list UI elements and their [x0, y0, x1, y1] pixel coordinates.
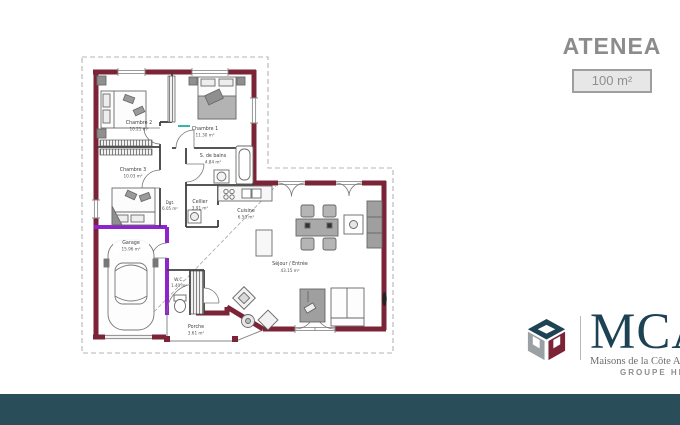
svg-text:Garage: Garage	[122, 240, 140, 246]
logo-text-column: MCA Maisons de la Côte Atlantique	[590, 312, 680, 367]
dining-set	[296, 205, 338, 250]
model-name: ATENEA	[554, 33, 670, 60]
svg-text:6.05 m²: 6.05 m²	[162, 206, 178, 211]
svg-text:S. de bains: S. de bains	[200, 153, 227, 159]
shutter-mark	[382, 292, 386, 306]
mca-logo: MCA Maisons de la Côte Atlantique	[523, 312, 680, 367]
kitchen-counters	[218, 186, 272, 256]
cube-logo-icon	[523, 316, 570, 363]
room-label-wc: W.C. 1.40 m²	[171, 277, 187, 288]
svg-text:Chambre 1: Chambre 1	[192, 126, 218, 132]
room-label-chambre2: Chambre 2 10.21 m²	[126, 120, 152, 132]
logo-divider	[580, 316, 581, 360]
room-label-sejour: Séjour / Entrée 43.15 m²	[272, 260, 308, 273]
svg-text:Chambre 2: Chambre 2	[126, 120, 152, 126]
area-badge: 100 m²	[572, 69, 652, 93]
floor-plan-sheet: Chambre 2 10.21 m² Chambre 1 11.30 m² Ch…	[0, 0, 680, 425]
washer-cellier	[188, 210, 201, 223]
svg-text:10.03 m²: 10.03 m²	[123, 174, 142, 179]
room-label-porche: Porche 3.61 m²	[188, 324, 205, 336]
bathroom-fixtures	[214, 146, 253, 184]
tv-unit	[300, 289, 325, 322]
toilet	[174, 295, 186, 313]
room-label-dgt: Dgt. 6.05 m²	[162, 200, 178, 211]
footer-bar	[0, 394, 680, 425]
svg-text:4.84 m²: 4.84 m²	[205, 160, 222, 165]
room-label-chambre1: Chambre 1 11.30 m²	[192, 126, 218, 138]
sofa-bottom	[331, 288, 364, 326]
svg-text:15.96 m²: 15.96 m²	[121, 247, 140, 252]
svg-text:Cellier: Cellier	[192, 199, 207, 205]
svg-text:Chambre 3: Chambre 3	[120, 167, 146, 173]
room-label-cuisine: Cuisine 6.50 m²	[237, 208, 255, 220]
brand-tagline: Maisons de la Côte Atlantique	[590, 356, 680, 367]
svg-text:Séjour / Entrée: Séjour / Entrée	[272, 260, 308, 267]
svg-text:11.30 m²: 11.30 m²	[195, 133, 214, 138]
svg-text:10.21 m²: 10.21 m²	[129, 127, 148, 132]
svg-text:43.15 m²: 43.15 m²	[280, 268, 299, 273]
svg-text:Porche: Porche	[188, 324, 204, 330]
svg-text:Dgt.: Dgt.	[166, 200, 175, 205]
bed-chambre3	[112, 188, 155, 225]
svg-text:Cuisine: Cuisine	[237, 208, 255, 214]
room-label-sdb: S. de bains 4.84 m²	[200, 153, 227, 165]
sofa-right-wall	[344, 201, 382, 248]
car	[104, 240, 158, 330]
group-label: GROUPE HEXAOM	[620, 368, 680, 377]
svg-text:6.50 m²: 6.50 m²	[238, 215, 255, 220]
title-block: ATENEA 100 m²	[554, 33, 670, 93]
svg-text:3.61 m²: 3.61 m²	[188, 331, 205, 336]
svg-text:1.40 m²: 1.40 m²	[171, 283, 187, 288]
room-label-garage: Garage 15.96 m²	[121, 240, 140, 252]
svg-text:3.91 m²: 3.91 m²	[192, 206, 209, 211]
room-label-cellier: Cellier 3.91 m²	[192, 199, 209, 211]
brand-wordmark: MCA	[590, 312, 680, 352]
garage-door	[105, 336, 152, 339]
room-label-chambre3: Chambre 3 10.03 m²	[120, 167, 146, 179]
bed-chambre1	[189, 77, 245, 119]
